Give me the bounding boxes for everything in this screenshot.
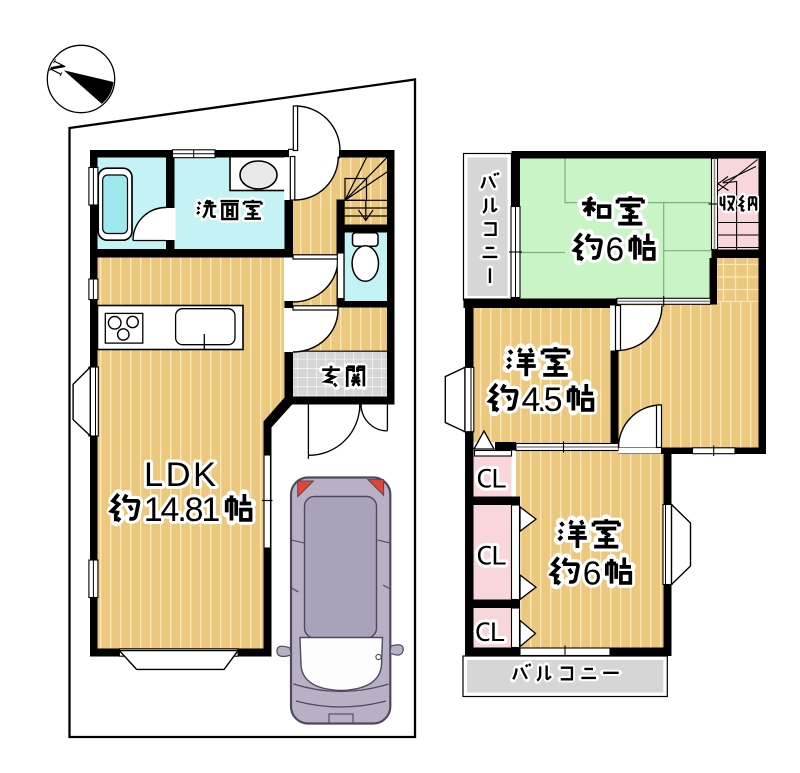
- svg-text:4.5: 4.5: [522, 381, 563, 419]
- svg-text:CL: CL: [477, 464, 507, 494]
- svg-text:CL: CL: [475, 617, 505, 647]
- svg-text:LDK: LDK: [144, 456, 216, 494]
- svg-text:6: 6: [583, 555, 602, 592]
- svg-text:CL: CL: [477, 541, 507, 571]
- svg-text:14.81: 14.81: [144, 491, 221, 529]
- svg-text:6: 6: [606, 231, 625, 268]
